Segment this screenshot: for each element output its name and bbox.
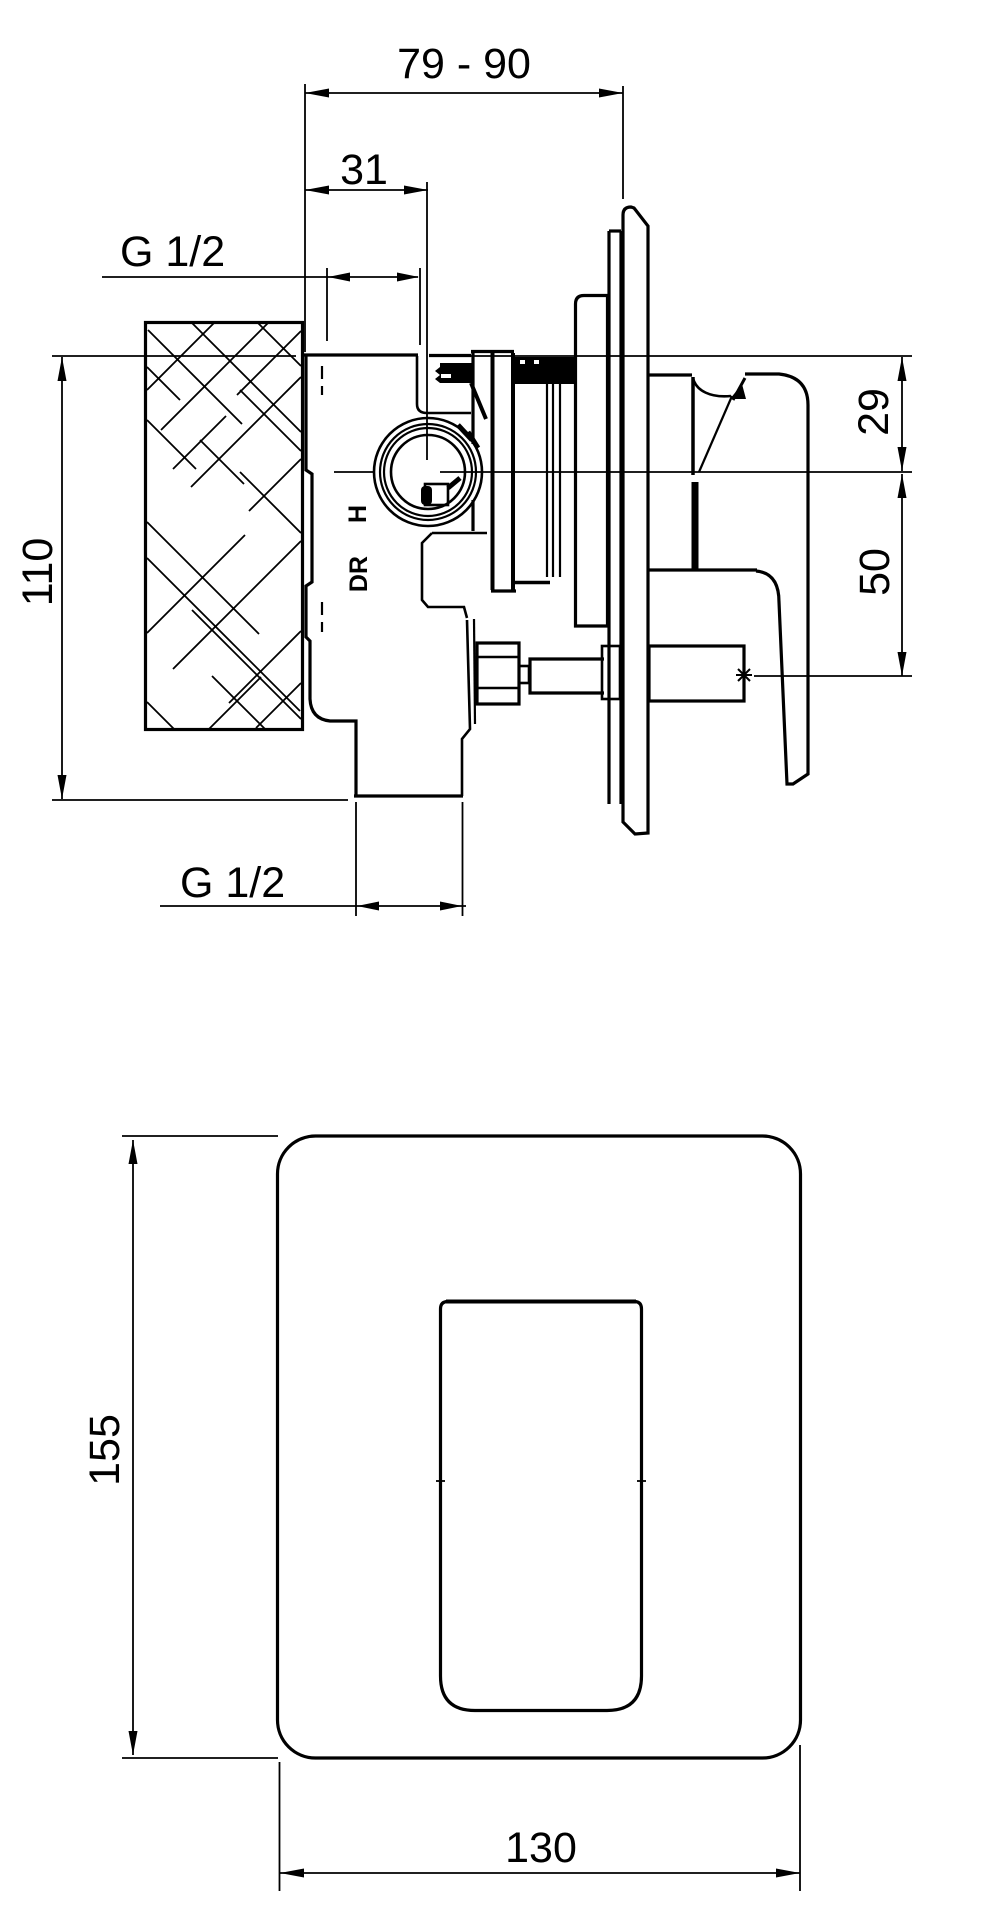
- svg-text:29: 29: [850, 388, 898, 436]
- svg-text:G 1/2: G 1/2: [120, 228, 225, 276]
- svg-text:110: 110: [14, 538, 62, 607]
- svg-text:G 1/2: G 1/2: [180, 859, 285, 907]
- svg-text:31: 31: [340, 146, 388, 194]
- svg-text:155: 155: [81, 1414, 129, 1486]
- svg-text:H: H: [344, 505, 372, 523]
- svg-text:79 - 90: 79 - 90: [397, 40, 531, 88]
- svg-text:130: 130: [505, 1824, 577, 1872]
- svg-text:50: 50: [851, 548, 899, 596]
- svg-text:DR: DR: [345, 556, 373, 592]
